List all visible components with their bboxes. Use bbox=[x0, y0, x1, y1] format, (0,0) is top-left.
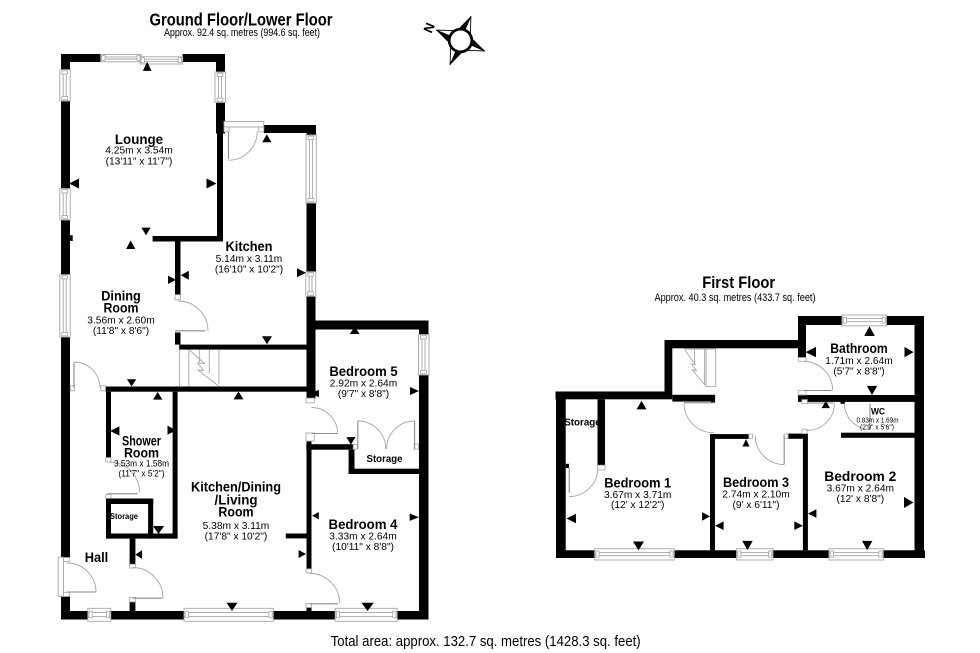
svg-text:3.67m x 2.64m: 3.67m x 2.64m bbox=[827, 483, 894, 494]
svg-text:(11'8" x 8'6"): (11'8" x 8'6") bbox=[93, 326, 149, 337]
svg-text:3.56m x 2.60m: 3.56m x 2.60m bbox=[87, 315, 154, 326]
svg-text:2.74m x 2.10m: 2.74m x 2.10m bbox=[722, 489, 789, 500]
svg-text:Storage: Storage bbox=[367, 454, 403, 465]
svg-text:(11'7" x 5'2"): (11'7" x 5'2") bbox=[119, 469, 165, 480]
svg-text:(5'7" x 8'8"): (5'7" x 8'8") bbox=[833, 366, 884, 377]
svg-text:(2'9" x 5'6"): (2'9" x 5'6") bbox=[860, 424, 894, 431]
svg-text:Bathroom: Bathroom bbox=[830, 341, 888, 356]
svg-text:3.67m x 3.71m: 3.67m x 3.71m bbox=[604, 490, 671, 501]
svg-text:Storage: Storage bbox=[110, 511, 138, 521]
svg-text:Room: Room bbox=[104, 301, 139, 316]
svg-text:Bedroom 4: Bedroom 4 bbox=[329, 517, 398, 532]
svg-text:(9' x 6'11"): (9' x 6'11") bbox=[733, 500, 780, 511]
svg-text:(12' x 12'2"): (12' x 12'2") bbox=[611, 500, 664, 511]
svg-text:5.38m x 3.11m: 5.38m x 3.11m bbox=[203, 521, 270, 532]
svg-text:Total area: approx. 132.7 sq.: Total area: approx. 132.7 sq. metres (14… bbox=[331, 634, 641, 650]
svg-text:3.33m x 2.64m: 3.33m x 2.64m bbox=[329, 532, 396, 543]
svg-text:WC: WC bbox=[871, 407, 885, 417]
svg-text:(13'11" x 11'7"): (13'11" x 11'7") bbox=[106, 156, 173, 167]
svg-text:(17'8" x 10'2"): (17'8" x 10'2") bbox=[205, 532, 268, 543]
svg-text:Bedroom 1: Bedroom 1 bbox=[604, 476, 671, 491]
svg-text:(16'10" x 10'2"): (16'10" x 10'2") bbox=[215, 264, 283, 275]
svg-text:Hall: Hall bbox=[85, 550, 109, 565]
svg-text:Bedroom 5: Bedroom 5 bbox=[329, 364, 398, 379]
svg-text:Room: Room bbox=[218, 504, 253, 519]
svg-text:4.25m x 3.54m: 4.25m x 3.54m bbox=[105, 146, 172, 157]
svg-text:Approx. 40.3 sq. metres (433.7: Approx. 40.3 sq. metres (433.7 sq. feet) bbox=[655, 292, 816, 304]
svg-text:1.71m x 2.64m: 1.71m x 2.64m bbox=[825, 356, 892, 367]
svg-text:Bedroom 3: Bedroom 3 bbox=[723, 475, 789, 490]
svg-text:Storage: Storage bbox=[564, 418, 601, 429]
svg-text:Approx. 92.4 sq. metres (994.6: Approx. 92.4 sq. metres (994.6 sq. feet) bbox=[164, 27, 320, 39]
svg-text:(10'11" x 8'8"): (10'11" x 8'8") bbox=[332, 542, 394, 553]
svg-text:(12' x 8'8"): (12' x 8'8") bbox=[836, 494, 884, 505]
svg-text:Kitchen: Kitchen bbox=[226, 239, 273, 254]
svg-text:(9'7" x 8'8"): (9'7" x 8'8") bbox=[338, 389, 389, 400]
svg-text:5.14m x 3.11m: 5.14m x 3.11m bbox=[216, 254, 283, 265]
svg-text:Bedroom 2: Bedroom 2 bbox=[824, 469, 896, 484]
svg-text:First Floor: First Floor bbox=[702, 274, 776, 292]
